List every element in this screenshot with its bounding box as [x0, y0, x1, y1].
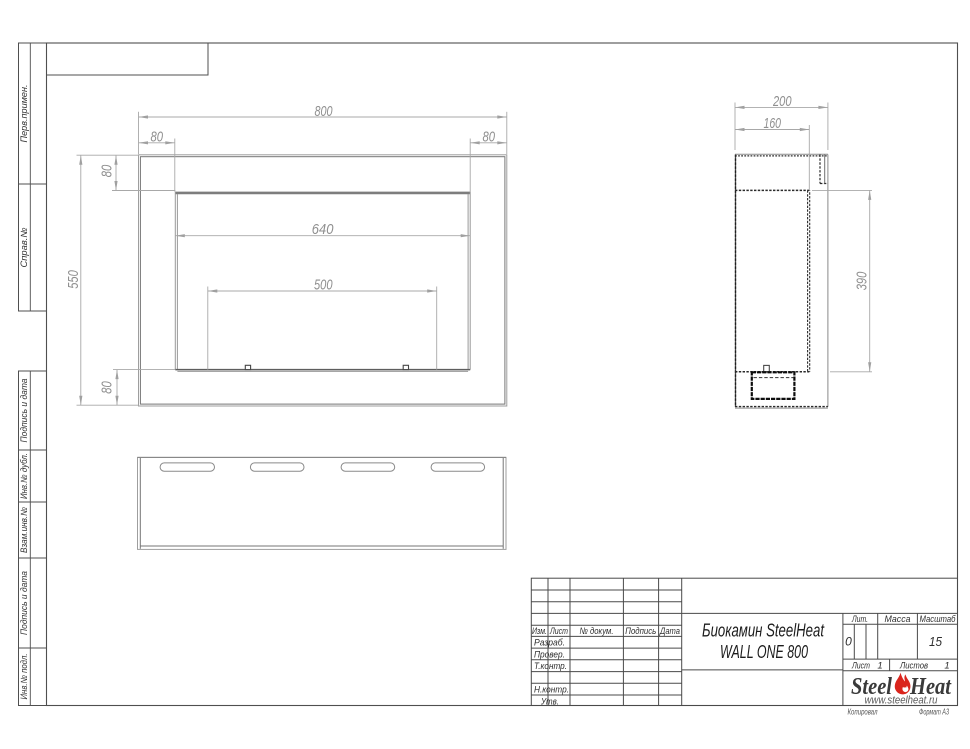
svg-text:Инв.№ дубл.: Инв.№ дубл. [19, 453, 29, 499]
svg-text:1: 1 [944, 660, 949, 671]
svg-text:Утв.: Утв. [540, 696, 559, 707]
svg-text:80: 80 [98, 164, 115, 177]
svg-text:1: 1 [877, 660, 882, 671]
svg-text:550: 550 [65, 270, 82, 289]
svg-text:0: 0 [845, 635, 852, 649]
svg-text:Провер.: Провер. [534, 649, 565, 660]
svg-text:Лит.: Лит. [851, 614, 868, 625]
svg-text:200: 200 [772, 93, 792, 110]
svg-text:Биокамин SteelHeat: Биокамин SteelHeat [702, 621, 825, 641]
svg-text:Инв.№ подл.: Инв.№ подл. [19, 654, 29, 700]
svg-text:Изм.: Изм. [532, 626, 547, 637]
svg-text:Масса: Масса [885, 614, 911, 625]
svg-text:640: 640 [312, 221, 334, 238]
svg-text:Копировал: Копировал [848, 706, 878, 716]
svg-text:www.steelheat.ru: www.steelheat.ru [865, 695, 938, 707]
svg-text:160: 160 [764, 115, 782, 132]
svg-text:800: 800 [315, 103, 333, 120]
svg-text:Подпись и дата: Подпись и дата [19, 571, 29, 635]
svg-text:WALL ONE 800: WALL ONE 800 [720, 642, 808, 662]
svg-text:Подпись и дата: Подпись и дата [19, 379, 29, 443]
svg-text:№ докум.: № докум. [580, 626, 614, 637]
svg-text:Формат А3: Формат А3 [919, 706, 949, 716]
svg-text:Н.контр.: Н.контр. [534, 685, 569, 696]
svg-text:Листов: Листов [899, 660, 928, 671]
svg-text:Лист: Лист [851, 660, 870, 671]
svg-text:15: 15 [929, 634, 943, 649]
svg-text:Взам.инв.№: Взам.инв.№ [19, 507, 29, 553]
svg-text:80: 80 [483, 128, 496, 145]
svg-text:500: 500 [314, 276, 333, 293]
svg-text:Лист: Лист [549, 626, 568, 637]
svg-text:Разраб.: Разраб. [534, 638, 565, 649]
svg-text:Масштаб: Масштаб [920, 614, 957, 625]
svg-text:80: 80 [98, 381, 115, 394]
svg-text:Т.контр.: Т.контр. [534, 661, 567, 672]
svg-text:Перв.примен.: Перв.примен. [19, 85, 29, 143]
svg-text:80: 80 [151, 128, 164, 145]
svg-text:Подпись: Подпись [625, 626, 656, 637]
svg-text:Дата: Дата [659, 626, 680, 637]
svg-text:Справ.№: Справ.№ [19, 227, 29, 267]
svg-text:390: 390 [853, 271, 870, 290]
